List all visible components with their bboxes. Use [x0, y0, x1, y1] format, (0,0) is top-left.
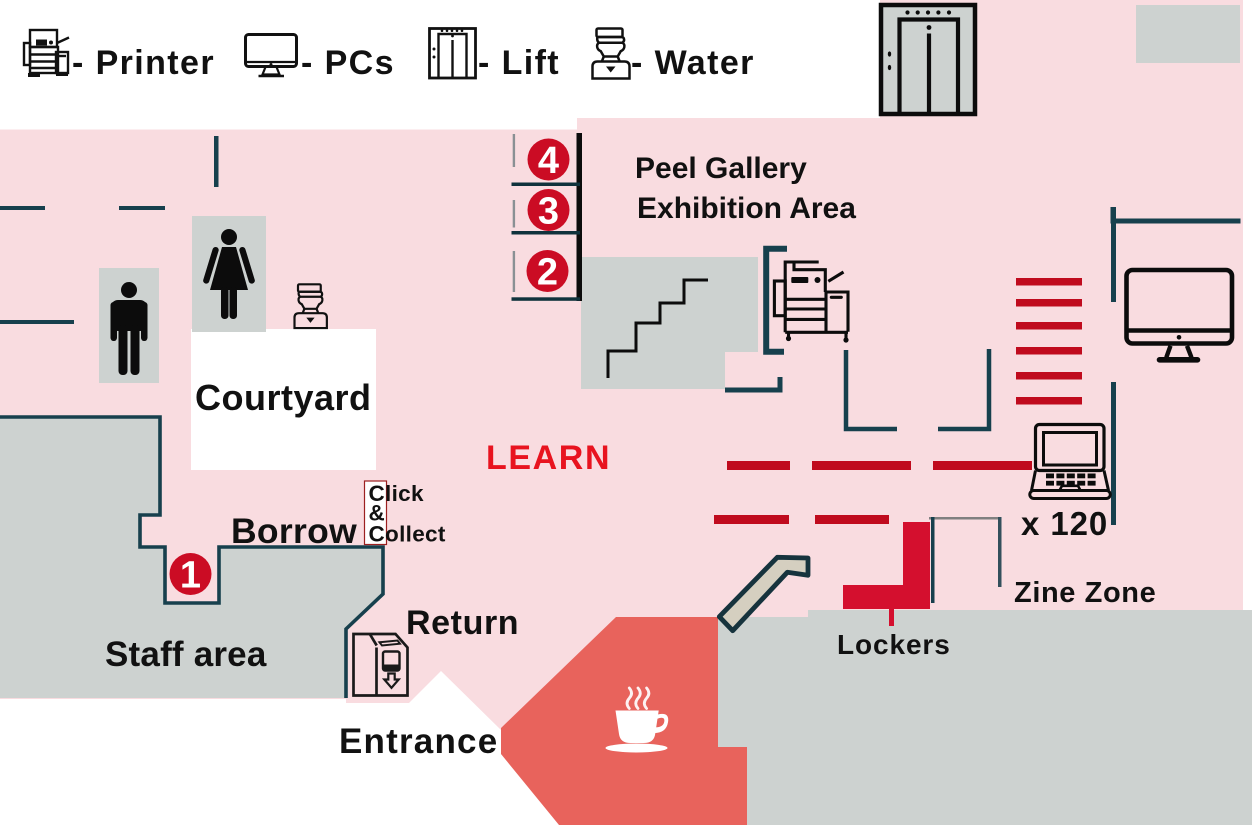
svg-text:LEARN: LEARN	[486, 439, 611, 477]
svg-text:1: 1	[180, 555, 201, 597]
svg-text:3: 3	[538, 191, 559, 233]
svg-text:Entrance: Entrance	[339, 722, 498, 761]
svg-text:- PCs: - PCs	[301, 44, 395, 82]
svg-text:Return: Return	[406, 604, 519, 642]
svg-text:Lockers: Lockers	[837, 629, 951, 660]
svg-text:Courtyard: Courtyard	[195, 377, 372, 418]
svg-text:x 120: x 120	[1021, 505, 1108, 542]
svg-text:Zine Zone: Zine Zone	[1014, 577, 1156, 609]
svg-text:- Lift: - Lift	[478, 44, 560, 82]
svg-text:- Water: - Water	[631, 44, 755, 82]
svg-text:4: 4	[538, 140, 559, 182]
svg-text:Borrow: Borrow	[231, 511, 357, 551]
svg-text:Staff area: Staff area	[105, 635, 267, 674]
svg-text:- Printer: - Printer	[72, 44, 215, 82]
svg-text:2: 2	[537, 252, 558, 294]
svg-text:Exhibition Area: Exhibition Area	[637, 192, 856, 225]
svg-text:Peel Gallery: Peel Gallery	[635, 152, 807, 185]
svg-text:Collect: Collect	[369, 522, 446, 547]
